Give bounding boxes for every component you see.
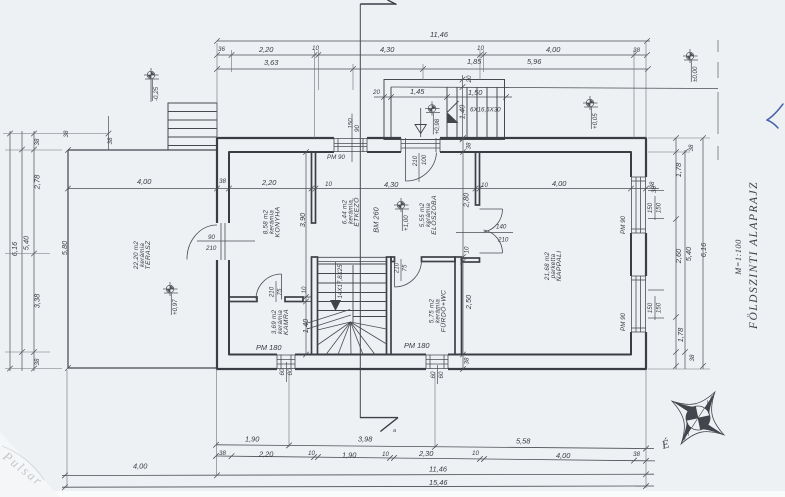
svg-text:210: 210 bbox=[497, 237, 509, 244]
svg-text:kerámia: kerámia bbox=[435, 299, 442, 323]
svg-text:±0,00: ±0,00 bbox=[692, 66, 699, 82]
svg-text:140: 140 bbox=[496, 224, 507, 231]
svg-text:20: 20 bbox=[372, 89, 380, 96]
svg-text:21,68 m2: 21,68 m2 bbox=[544, 252, 551, 281]
svg-text:10: 10 bbox=[301, 286, 308, 293]
svg-text:PM 180: PM 180 bbox=[404, 341, 430, 350]
svg-text:PM 180: PM 180 bbox=[256, 343, 282, 352]
svg-text:11,46: 11,46 bbox=[429, 464, 448, 473]
svg-text:1,78: 1,78 bbox=[676, 327, 685, 342]
svg-text:210: 210 bbox=[394, 262, 401, 274]
svg-text:parketta: parketta bbox=[550, 253, 557, 279]
svg-text:BM 260: BM 260 bbox=[372, 206, 381, 232]
svg-text:100: 100 bbox=[421, 154, 428, 165]
svg-text:10: 10 bbox=[472, 450, 479, 457]
svg-text:TERASZ: TERASZ bbox=[145, 240, 152, 270]
svg-text:5,40: 5,40 bbox=[684, 246, 693, 261]
svg-text:5,96: 5,96 bbox=[527, 57, 542, 66]
svg-text:60: 60 bbox=[287, 368, 294, 375]
svg-text:a: a bbox=[393, 428, 396, 434]
svg-text:1,40: 1,40 bbox=[458, 104, 467, 119]
svg-text:38: 38 bbox=[688, 144, 695, 151]
svg-text:38: 38 bbox=[689, 354, 696, 361]
svg-text:1,45: 1,45 bbox=[410, 87, 425, 96]
svg-text:10: 10 bbox=[464, 246, 471, 253]
svg-text:1,40: 1,40 bbox=[301, 318, 310, 333]
svg-text:3,69 m2: 3,69 m2 bbox=[271, 310, 278, 335]
svg-text:4,30: 4,30 bbox=[384, 180, 399, 189]
svg-text:2,30: 2,30 bbox=[418, 449, 434, 458]
svg-text:150: 150 bbox=[647, 302, 654, 313]
svg-text:PM 90: PM 90 bbox=[620, 216, 627, 234]
svg-text:10: 10 bbox=[325, 181, 332, 188]
svg-text:2,20: 2,20 bbox=[261, 178, 277, 187]
svg-text:210: 210 bbox=[412, 155, 419, 167]
svg-text:3,63: 3,63 bbox=[264, 58, 279, 67]
svg-text:+0,98: +0,98 bbox=[434, 118, 441, 134]
svg-text:38: 38 bbox=[464, 357, 471, 364]
svg-text:8,58 m2: 8,58 m2 bbox=[263, 210, 270, 235]
svg-text:2,50: 2,50 bbox=[464, 294, 473, 310]
svg-text:6,16: 6,16 bbox=[699, 242, 708, 257]
svg-text:4,00: 4,00 bbox=[133, 462, 148, 471]
svg-text:4,00: 4,00 bbox=[556, 451, 571, 460]
svg-text:38: 38 bbox=[633, 451, 640, 458]
svg-text:kerámia: kerámia bbox=[348, 200, 355, 224]
svg-text:150: 150 bbox=[656, 202, 663, 213]
svg-text:22,20 m2: 22,20 m2 bbox=[133, 241, 140, 270]
svg-text:3,90: 3,90 bbox=[298, 212, 307, 227]
svg-text:4,00: 4,00 bbox=[552, 179, 567, 188]
svg-text:75: 75 bbox=[402, 264, 409, 271]
svg-text:6X16,6X30: 6X16,6X30 bbox=[470, 107, 501, 114]
svg-text:kerámia: kerámia bbox=[277, 310, 284, 334]
svg-text:36: 36 bbox=[218, 46, 225, 53]
svg-text:kerámia: kerámia bbox=[269, 210, 276, 234]
svg-text:11,46: 11,46 bbox=[430, 30, 449, 39]
svg-text:90: 90 bbox=[208, 234, 215, 241]
svg-text:1,50: 1,50 bbox=[468, 88, 483, 97]
svg-text:10: 10 bbox=[481, 182, 488, 189]
svg-text:10: 10 bbox=[382, 451, 389, 458]
svg-text:1,78: 1,78 bbox=[674, 162, 683, 177]
svg-text:38: 38 bbox=[651, 186, 658, 193]
svg-text:5,55 m2: 5,55 m2 bbox=[419, 203, 426, 228]
svg-text:5,40: 5,40 bbox=[22, 235, 31, 250]
svg-text:38: 38 bbox=[34, 358, 41, 365]
svg-text:38: 38 bbox=[219, 178, 226, 185]
svg-text:20: 20 bbox=[466, 75, 473, 83]
svg-text:3,38: 3,38 bbox=[33, 293, 42, 308]
svg-text:150: 150 bbox=[647, 202, 654, 213]
svg-text:14X17,8X25: 14X17,8X25 bbox=[337, 264, 344, 299]
svg-text:kerámia: kerámia bbox=[139, 243, 146, 267]
svg-text:6,16: 6,16 bbox=[10, 241, 19, 256]
svg-text:5,75 m2: 5,75 m2 bbox=[429, 299, 436, 324]
svg-text:3,98: 3,98 bbox=[358, 435, 373, 444]
svg-text:1,90: 1,90 bbox=[342, 450, 357, 459]
svg-text:75: 75 bbox=[277, 288, 284, 295]
svg-text:+0,97: +0,97 bbox=[172, 299, 179, 315]
svg-text:+1,00: +1,00 bbox=[403, 215, 410, 231]
svg-text:M=1:100: M=1:100 bbox=[733, 239, 743, 276]
svg-text:38: 38 bbox=[219, 450, 226, 457]
svg-text:1,90: 1,90 bbox=[245, 435, 260, 444]
svg-text:150: 150 bbox=[656, 302, 663, 313]
svg-text:38: 38 bbox=[107, 137, 114, 144]
svg-text:4,00: 4,00 bbox=[137, 177, 152, 186]
svg-text:2,60: 2,60 bbox=[674, 248, 683, 264]
svg-text:10: 10 bbox=[477, 45, 484, 52]
svg-text:60: 60 bbox=[430, 371, 437, 378]
svg-text:-0,25: -0,25 bbox=[153, 86, 160, 101]
svg-text:kerámia: kerámia bbox=[425, 203, 432, 227]
svg-text:90: 90 bbox=[354, 125, 361, 132]
svg-text:38: 38 bbox=[34, 138, 41, 145]
svg-text:15,46: 15,46 bbox=[429, 478, 448, 487]
svg-text:NAPPALI: NAPPALI bbox=[556, 250, 563, 281]
svg-text:4,00: 4,00 bbox=[546, 45, 561, 54]
svg-text:5,58: 5,58 bbox=[516, 437, 531, 446]
svg-text:KAMRA: KAMRA bbox=[283, 309, 290, 335]
svg-text:6,44 m2: 6,44 m2 bbox=[342, 200, 349, 225]
svg-text:5,80: 5,80 bbox=[60, 240, 69, 255]
svg-text:PM 90: PM 90 bbox=[620, 313, 627, 331]
svg-text:60: 60 bbox=[279, 368, 286, 375]
svg-text:KONYHA: KONYHA bbox=[275, 206, 282, 237]
svg-text:38: 38 bbox=[63, 130, 70, 137]
svg-text:2,80: 2,80 bbox=[462, 192, 471, 208]
svg-text:10: 10 bbox=[308, 450, 315, 457]
svg-text:2,78: 2,78 bbox=[33, 174, 42, 190]
svg-text:+0,05: +0,05 bbox=[592, 113, 599, 129]
svg-text:210: 210 bbox=[269, 286, 276, 298]
svg-text:60: 60 bbox=[438, 371, 445, 378]
svg-text:2,20: 2,20 bbox=[258, 449, 274, 458]
svg-text:210: 210 bbox=[205, 245, 217, 252]
svg-text:38: 38 bbox=[466, 142, 473, 149]
svg-text:PM 90: PM 90 bbox=[327, 154, 345, 161]
svg-text:FÖLDSZINTI ALAPRAJZ: FÖLDSZINTI ALAPRAJZ bbox=[745, 181, 760, 330]
svg-text:2,20: 2,20 bbox=[258, 45, 274, 54]
svg-text:4,30: 4,30 bbox=[380, 45, 395, 54]
